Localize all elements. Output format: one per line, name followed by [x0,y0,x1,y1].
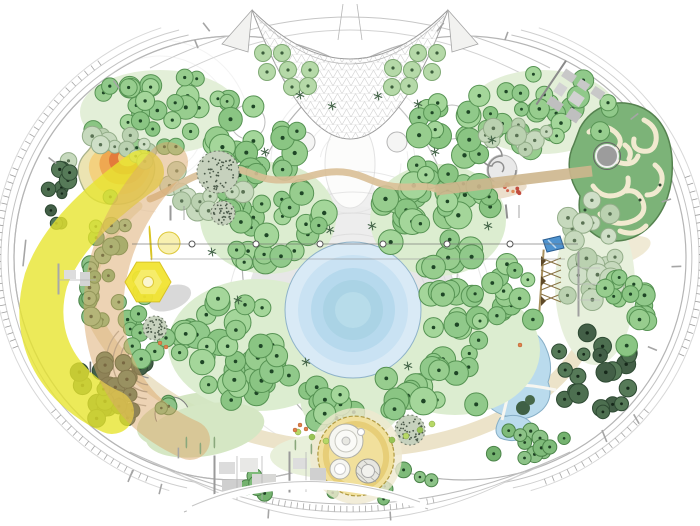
tree-dot [391,66,394,69]
stipple-dot [221,208,223,210]
rim-tick [67,426,71,430]
stipple-dot [213,188,215,190]
tree-dot [198,200,201,203]
stipple-dot [223,162,225,164]
rim-tick [609,443,613,448]
stipple-dot [208,161,210,163]
rim-tick [685,339,691,341]
tree-dot [638,318,642,322]
plan-circle [253,241,259,247]
tree-dot [171,119,174,122]
tree-dot [280,51,283,54]
rim-tick [582,462,585,467]
rim-tick [3,196,9,198]
stipple-dot [217,204,219,206]
tree-dot [436,101,439,104]
rim-tick [91,446,95,451]
tree-dot [582,353,585,356]
plan-circle [507,241,513,247]
shrub-dot [304,427,308,431]
rim-tick [644,409,649,413]
plan-rect [672,266,681,267]
tree-dot [108,85,111,88]
rim-tick [602,448,606,453]
rim-tick [396,503,397,509]
shrub-dot [309,434,315,440]
tree-dot [548,446,551,449]
tree-dot [519,434,522,437]
rim-tick [51,409,56,413]
tree-dot [195,77,198,80]
rim-tick [692,199,698,200]
stipple-dot [406,425,408,427]
rim-tick [0,298,4,299]
rim-tick [544,479,546,485]
tree-dot [393,407,397,411]
rim-tick [5,326,11,328]
tree-dot [260,202,263,205]
rim-tick [91,66,95,71]
tree-dot [576,375,579,378]
rim-tick [696,222,700,223]
tree-dot [113,145,116,148]
stipple-dot [228,211,230,213]
rim-tick [39,120,44,123]
stipple-dot [403,424,405,426]
tree-dot [279,254,283,258]
rim-tick [60,94,64,98]
tree-dot [306,84,309,87]
rim-tick [695,214,700,215]
stipple-dot [158,334,160,336]
rim-tick [18,156,23,159]
tree-dot [288,206,292,210]
tree-dot [625,344,629,348]
tree-dot [456,213,460,217]
plan-rect [214,456,215,500]
stipple-dot [153,324,155,326]
rim-tick [1,312,7,313]
rim-tick [117,463,120,468]
rim-tick [690,191,696,193]
tree-dot [470,255,474,259]
rim-tick [615,438,619,443]
stipple-dot [217,172,219,174]
stipple-dot [212,157,214,159]
tree-dot [156,109,160,113]
stipple-dot [222,165,224,167]
plan-rect [293,458,307,469]
tree-dot [513,269,516,272]
stipple-dot [158,319,160,321]
plan-rect [186,437,187,448]
stipple-dot [148,327,150,329]
tree-dot [606,101,609,104]
tree-dot [205,313,209,317]
tree-dot [490,281,494,285]
tree-dot [226,344,230,348]
tree-dot [234,360,238,364]
stipple-dot [210,176,212,178]
stipple-dot [218,162,220,164]
tree-dot [209,195,212,198]
plan-circle [596,145,618,167]
tree-dot [239,220,243,224]
shrub-dot [298,423,302,427]
rim-tick [25,141,30,144]
rim-tick [695,301,700,302]
rim-tick [79,436,83,441]
tree-dot [286,68,289,71]
stipple-dot [155,319,157,321]
tree-dot [435,51,438,54]
tree-dot [304,222,308,226]
tree-dot [308,68,311,71]
rim-tick [687,183,693,185]
rim-tick [679,354,684,356]
tree-dot [189,130,192,133]
flower-dot [506,189,509,192]
stipple-dot [215,159,217,161]
plan-rect [170,206,171,220]
tree-dot [131,345,134,348]
tree-dot [207,209,211,213]
tree-dot [139,119,142,122]
stipple-dot [208,169,210,171]
rim-tick [297,503,298,509]
stipple-dot [152,322,154,324]
rim-tick [309,504,310,510]
rim-tick [390,504,391,510]
tree-dot [139,331,142,334]
plan-rect [295,440,296,450]
tree-dot [410,68,413,71]
rim-tick [44,113,49,117]
stipple-dot [216,174,218,176]
tree-dot [99,143,102,146]
stipple-dot [415,439,417,441]
rim-tick [687,332,693,334]
shrub-dot [293,428,297,432]
stipple-dot [214,186,216,188]
plan-rect [505,32,508,40]
stipple-dot [222,185,224,187]
shrub-dot [518,343,522,347]
tree-dot [524,148,527,151]
tree-dot [608,212,612,216]
tree-dot [558,350,561,353]
stipple-dot [414,419,416,421]
tree-dot [466,110,470,114]
tree-dot [441,293,445,297]
tree-dot [259,344,263,348]
plan-rect [203,23,210,31]
stipple-dot [399,430,401,432]
tree-dot [234,328,238,332]
rim-tick [552,476,554,482]
tree-dot [261,51,264,54]
stipple-dot [150,331,152,333]
stipple-dot [402,428,404,430]
tree-dot [455,323,459,327]
tree-dot [526,278,529,281]
stipple-dot [209,172,211,174]
tree-dot [322,211,326,215]
tree-dot [164,336,167,339]
tree-dot [317,224,320,227]
tree-dot [338,393,341,396]
tree-dot [235,248,238,251]
tree-dot [618,276,621,279]
rim-tick [72,82,76,86]
tree-dot [446,172,450,176]
plan-rect [310,468,326,481]
stipple-dot [215,189,217,191]
stipple-dot [230,164,232,166]
stipple-dot [223,219,225,221]
tree-dot [495,314,498,317]
rim-tick [272,499,273,505]
plan-circle [358,429,365,436]
plan-rect [64,270,76,279]
stipple-dot [226,167,228,169]
tree-dot [559,121,563,125]
plan-circle [342,437,350,445]
rim-tick [278,500,279,506]
stipple-dot [220,183,222,185]
shrub-dot [158,341,162,345]
tree-dot [383,197,387,201]
rim-tick [13,346,19,348]
stipple-dot [150,328,152,330]
tree-dot [492,127,496,131]
rim-tick [1,203,7,204]
tree-dot [477,152,481,156]
tree-dot [625,363,628,366]
stipple-dot [409,431,411,433]
tree-dot [390,85,393,88]
stipple-dot [413,421,415,423]
stipple-dot [154,337,156,339]
rim-tick [694,206,700,207]
masterplan-page [0,0,700,526]
tree-dot [421,399,426,404]
rim-tick [0,210,6,211]
stipple-dot [225,182,227,184]
stipple-dot [213,212,215,214]
stipple-dot [414,436,416,438]
tree-dot [315,385,319,389]
stipple-dot [410,437,412,439]
rim-tick [433,497,434,503]
tree-dot [555,134,558,137]
tree-dot [602,411,605,414]
stipple-dot [229,213,231,215]
tree-dot [573,239,577,243]
tree-dot [519,92,522,95]
rim-tick [0,217,4,218]
tree-dot [607,235,610,238]
tree-dot [533,139,536,142]
plan-rect [58,264,59,294]
plan-circle [335,292,371,328]
rim-tick [21,149,26,152]
tree-dot [61,192,63,194]
rim-tick [7,182,13,184]
rim-tick [682,346,688,348]
tree-dot [538,107,542,111]
stipple-dot [164,327,166,329]
stipple-dot [160,334,162,336]
stipple-dot [204,173,206,175]
tree-dot [323,412,327,416]
tree-dot [232,378,236,382]
tree-dot [620,402,623,405]
stipple-dot [396,427,398,429]
tree-dot [127,86,130,89]
tree-dot [586,331,589,334]
stipple-dot [400,428,402,430]
tree-dot [129,328,132,331]
stipple-dot [220,166,222,168]
stipple-dot [220,168,222,170]
tree-dot [601,345,604,348]
tree-dot [323,398,327,402]
rim-tick [124,466,127,471]
stipple-dot [412,430,414,432]
tree-dot [153,350,156,353]
rim-tick [693,309,699,310]
stipple-dot [151,320,153,322]
plan-rect [159,484,162,494]
stipple-dot [222,216,224,218]
tree-dot [143,99,146,102]
stipple-dot [219,159,221,161]
tree-dot [613,256,616,259]
stipple-dot [220,205,222,207]
rim-tick [402,503,403,509]
plan-circle [584,209,587,212]
stipple-dot [215,208,217,210]
tree-dot [581,221,585,225]
rim-tick [427,499,428,505]
stipple-dot [159,323,161,325]
tree-dot [437,369,441,373]
tree-dot [474,292,477,295]
stipple-dot [160,325,162,327]
stipple-dot [212,171,214,173]
tree-dot [220,145,224,149]
stipple-dot [228,165,230,167]
tree-dot [629,293,632,296]
rim-tick [13,168,19,170]
plan-circle [158,232,180,254]
plan-circle [525,395,535,405]
tree-dot [523,457,526,460]
tree-dot [434,128,437,131]
stipple-dot [232,177,234,179]
tree-dot [58,168,61,171]
rim-tick [85,441,89,446]
tree-dot [430,479,433,482]
tree-dot [207,383,210,386]
stipple-dot [218,175,220,177]
shrub-dot [323,438,329,444]
plan-circle [387,132,407,152]
tree-dot [127,121,130,124]
stipple-dot [415,433,417,435]
plan-circle [189,241,195,247]
stipple-dot [220,210,222,212]
rim-tick [627,427,631,431]
rim-tick [111,459,114,464]
rim-tick [589,457,592,462]
tree-dot [226,100,229,103]
tree-dot [431,111,434,114]
stipple-dot [146,328,148,330]
tree-dot [468,352,471,355]
rim-tick [595,453,598,458]
tree-dot [389,240,393,244]
stipple-dot [216,180,218,182]
rim-tick [49,106,54,110]
tree-dot [243,303,247,307]
plan-rect [268,510,269,518]
rim-tick [567,469,570,474]
tree-dot [596,273,600,277]
tree-dot [244,151,248,155]
plan-line [357,4,362,40]
plan-path [448,10,478,52]
stipple-dot [223,186,225,188]
stipple-dot [229,159,231,161]
stipple-dot [160,320,162,322]
shrub-dot [164,345,168,349]
tree-dot [149,86,152,89]
stipple-dot [229,216,231,218]
stipple-dot [418,423,420,425]
stipple-dot [154,332,156,334]
tree-dot [415,164,418,167]
plan-rect [178,448,179,458]
stipple-dot [147,324,149,326]
tree-dot [295,130,298,133]
stipple-dot [230,169,232,171]
tree-dot [564,369,567,372]
stipple-dot [409,422,411,424]
stipple-dot [209,169,211,171]
tree-dot [241,190,245,194]
tree-dot [611,403,614,406]
rim-tick [34,127,39,130]
tree-dot [424,173,427,176]
tree-dot [275,354,279,358]
tree-dot [563,398,566,401]
tree-dot [47,188,50,191]
flower-dot [515,187,519,191]
tree-dot [432,326,436,330]
stipple-dot [219,212,221,214]
plan-line [338,4,343,40]
tree-dot [479,320,482,323]
stipple-dot [226,207,228,209]
tree-dot [216,297,220,301]
stipple-dot [221,222,223,224]
rim-tick [98,61,101,66]
tree-dot [566,216,570,220]
tree-dot [531,318,535,322]
tree-dot [243,261,246,264]
